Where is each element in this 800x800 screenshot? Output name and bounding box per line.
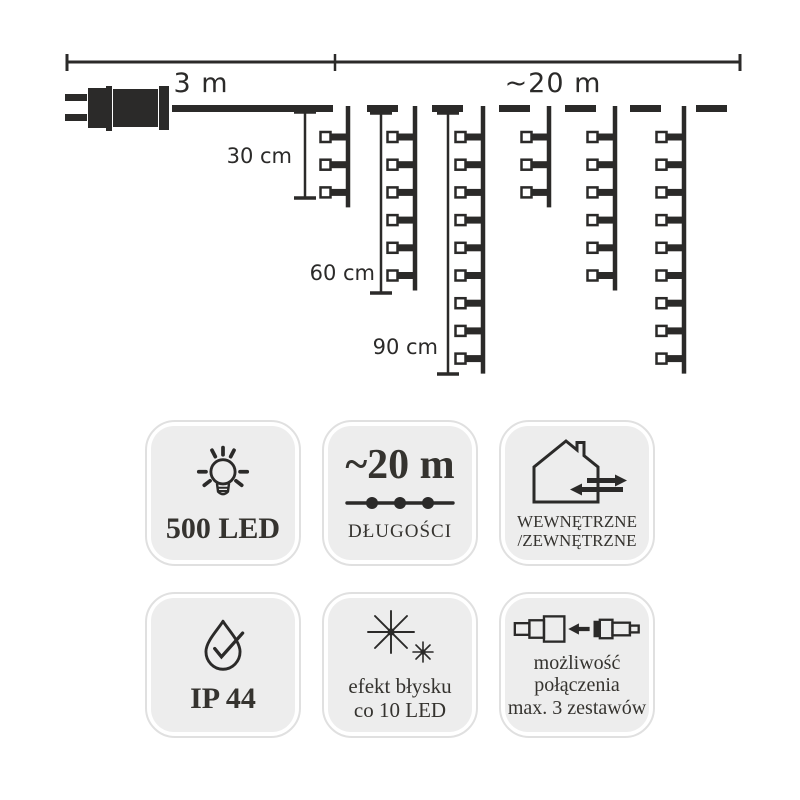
- placement-line2: /ZEWNĘTRZNE: [518, 531, 637, 550]
- connector-join-icon: [509, 611, 645, 647]
- drop-60cm-label: 60 cm: [309, 261, 375, 285]
- ip-rating-label: IP 44: [190, 683, 256, 715]
- flash-line2: co 10 LED: [354, 699, 446, 723]
- run-length-label: ~20 m: [488, 68, 618, 99]
- connectable-line1: możliwość: [534, 652, 621, 674]
- house-indoor-outdoor-icon: [524, 436, 630, 506]
- connectable-line3: max. 3 zestawów: [508, 697, 646, 719]
- sparkle-flash-icon: [355, 607, 445, 671]
- droplet-check-icon: [193, 615, 253, 677]
- badge-led-count: 500 LED: [145, 420, 301, 566]
- connectable-line2: połączenia: [534, 674, 620, 696]
- drop-90cm-label: 90 cm: [372, 335, 438, 359]
- badge-connectable: możliwość połączenia max. 3 zestawów: [499, 592, 655, 738]
- badge-ip-rating: IP 44: [145, 592, 301, 738]
- light-bulb-icon: [185, 441, 261, 507]
- placement-line1: WEWNĘTRZNE: [517, 512, 637, 531]
- drop-30cm-label: 30 cm: [226, 144, 292, 168]
- badge-length: ~20 m DŁUGOŚCI: [322, 420, 478, 566]
- badge-indoor-outdoor: WEWNĘTRZNE /ZEWNĘTRZNE: [499, 420, 655, 566]
- length-caption: DŁUGOŚCI: [348, 521, 452, 542]
- length-value: ~20 m: [345, 444, 454, 486]
- badge-flash-effect: efekt błysku co 10 LED: [322, 592, 478, 738]
- led-count-label: 500 LED: [166, 513, 280, 545]
- string-lights-icon: [342, 491, 458, 515]
- lead-length-label: 3 m: [136, 68, 266, 99]
- icicle-lights-infographic: 3 m ~20 m 30 cm 60 cm 90 cm: [0, 0, 800, 800]
- flash-line1: efekt błysku: [348, 675, 451, 699]
- feature-badges: 500 LED ~20 m DŁUGOŚCI WE: [145, 420, 655, 738]
- lights-dimension-diagram: 3 m ~20 m 30 cm 60 cm 90 cm: [0, 0, 800, 414]
